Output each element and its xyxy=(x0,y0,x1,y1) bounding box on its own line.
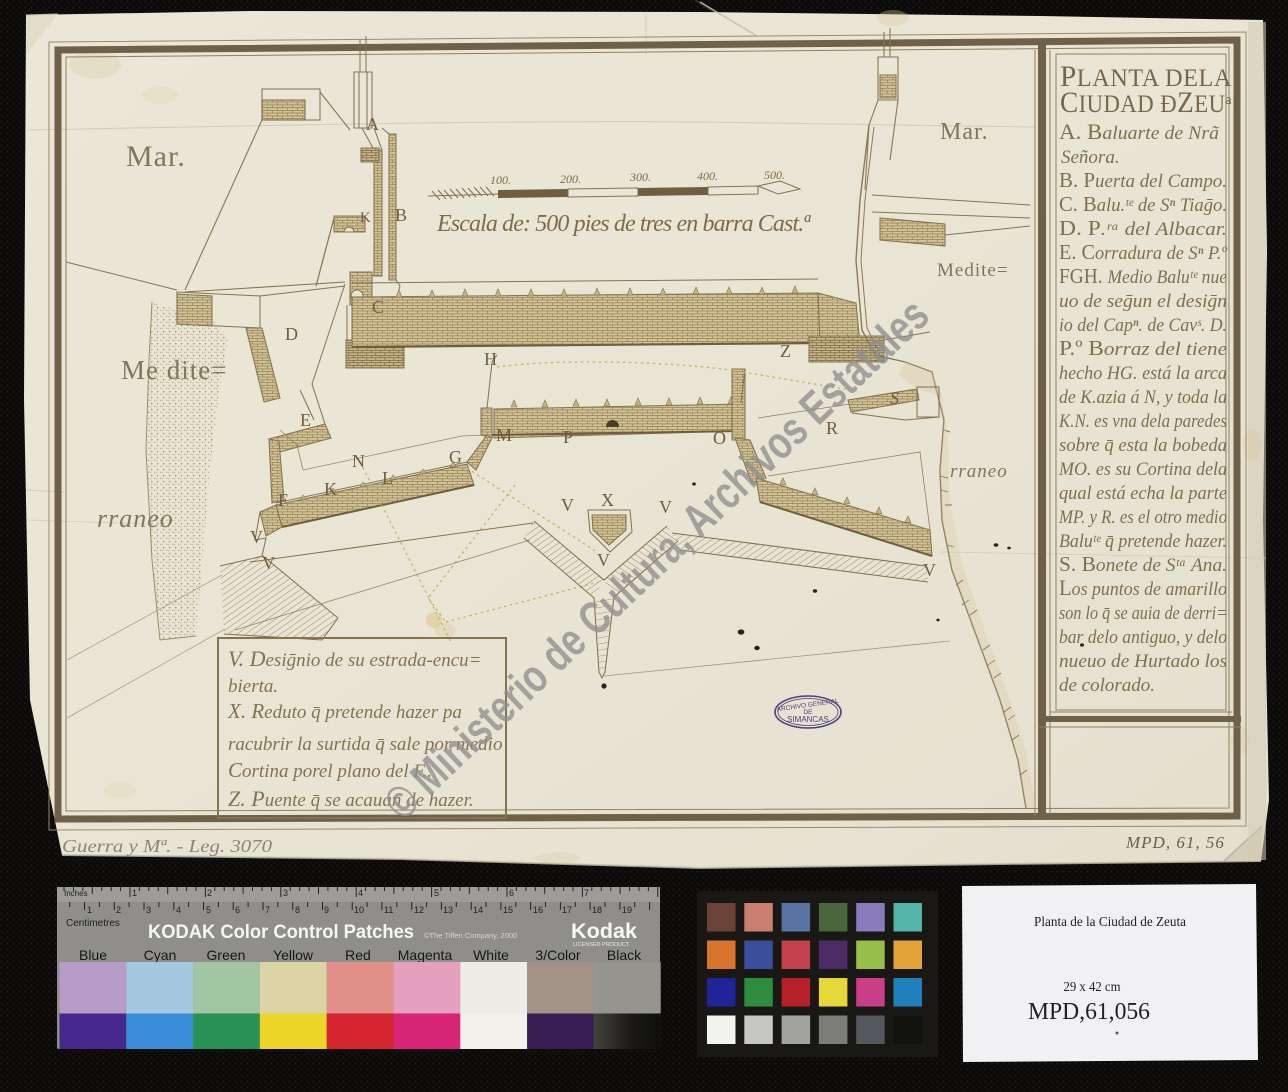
svg-text:de K.azia á N, y toda la: de K.azia á N, y toda la xyxy=(1059,387,1227,408)
svg-text:Medite=: Medite= xyxy=(937,260,1009,281)
svg-text:io del Capⁿ. de Cavˢ. D.: io del Capⁿ. de Cavˢ. D. xyxy=(1059,315,1227,336)
svg-text:Black: Black xyxy=(607,947,642,963)
svg-text:17: 17 xyxy=(562,905,572,915)
svg-text:100.: 100. xyxy=(490,173,511,187)
svg-text:©The Tiffen Company, 2000: ©The Tiffen Company, 2000 xyxy=(424,931,517,940)
svg-text:X. Reduto q̄ pretende hazer pa: X. Reduto q̄ pretende hazer pa xyxy=(227,699,462,723)
svg-text:Kodak: Kodak xyxy=(571,920,637,943)
svg-text:K: K xyxy=(360,210,371,226)
svg-text:SIMANCAS: SIMANCAS xyxy=(787,715,829,724)
svg-text:son lo q̄ se auia de derri=: son lo q̄ se auia de derri= xyxy=(1059,603,1227,624)
svg-text:Magenta: Magenta xyxy=(398,947,453,963)
svg-text:Mar.: Mar. xyxy=(126,140,186,173)
svg-text:sobre q̄ esta la bobeda: sobre q̄ esta la bobeda xyxy=(1059,435,1227,456)
svg-text:2: 2 xyxy=(116,905,121,915)
svg-text:V: V xyxy=(923,560,936,580)
svg-text:Señora.: Señora. xyxy=(1061,147,1120,168)
svg-text:K: K xyxy=(324,479,337,499)
svg-text:A. Baluarte de Nrã: A. Baluarte de Nrã xyxy=(1059,119,1220,144)
svg-text:qual está echa la parte: qual está echa la parte xyxy=(1059,483,1227,504)
svg-text:2: 2 xyxy=(207,888,212,898)
svg-text:Green: Green xyxy=(207,947,246,963)
svg-text:Cyan: Cyan xyxy=(144,947,177,963)
svg-text:S: S xyxy=(890,388,899,408)
svg-text:MO. es su Cortina dela: MO. es su Cortina dela xyxy=(1058,459,1227,480)
svg-text:3: 3 xyxy=(146,905,151,915)
svg-text:15: 15 xyxy=(503,905,513,915)
svg-text:O: O xyxy=(713,428,726,448)
svg-text:D. P.ʳᵃ del Albacar.: D. P.ʳᵃ del Albacar. xyxy=(1059,216,1227,240)
svg-text:Escala de: 500 pies de tres en: Escala de: 500 pies de tres en barra Cas… xyxy=(436,211,811,237)
svg-text:de colorado.: de colorado. xyxy=(1059,675,1155,696)
svg-text:Me dite=: Me dite= xyxy=(121,355,227,385)
svg-text:MPD,61,056: MPD,61,056 xyxy=(1028,999,1150,1025)
svg-text:300.: 300. xyxy=(629,170,651,184)
svg-text:500.: 500. xyxy=(764,168,785,182)
svg-text:9: 9 xyxy=(324,905,329,915)
svg-text:rraneo: rraneo xyxy=(97,504,174,533)
svg-text:X: X xyxy=(601,490,614,510)
svg-text:P: P xyxy=(563,427,573,447)
svg-text:CIUDAD ÐZEUa: CIUDAD ÐZEUa xyxy=(1060,86,1232,119)
svg-text:13: 13 xyxy=(443,905,453,915)
svg-text:Yellow: Yellow xyxy=(273,947,314,963)
svg-text:FGH. Medio Baluᵗᵉ nue: FGH. Medio Baluᵗᵉ nue xyxy=(1059,264,1227,288)
svg-text:4: 4 xyxy=(176,905,181,915)
svg-text:5: 5 xyxy=(434,888,439,898)
svg-text:Z: Z xyxy=(780,341,791,361)
svg-text:KODAK Color Control Patches: KODAK Color Control Patches xyxy=(148,922,414,943)
svg-text:V. Desiḡnio de su estrada-encu: V. Desiḡnio de su estrada-encu= xyxy=(228,646,481,671)
svg-text:Red: Red xyxy=(345,947,371,963)
svg-text:18: 18 xyxy=(592,905,602,915)
svg-text:5: 5 xyxy=(206,905,211,915)
svg-text:7: 7 xyxy=(265,905,270,915)
svg-text:Los puntos de amarillo: Los puntos de amarillo xyxy=(1059,575,1227,600)
svg-text:16: 16 xyxy=(533,905,543,915)
svg-text:Centimetres: Centimetres xyxy=(66,918,120,929)
svg-text:V: V xyxy=(597,550,610,570)
svg-text:nueuo de Hurtado los: nueuo de Hurtado los xyxy=(1059,651,1227,672)
svg-text:V: V xyxy=(561,495,574,515)
svg-text:L: L xyxy=(382,468,393,488)
svg-text:bar delo antiguo, y delo: bar delo antiguo, y delo xyxy=(1059,627,1227,648)
svg-text:C: C xyxy=(372,297,384,317)
svg-text:4: 4 xyxy=(358,888,363,898)
svg-text:MPD, 61, 56: MPD, 61, 56 xyxy=(1125,833,1225,852)
svg-text:G: G xyxy=(449,447,462,467)
svg-text:PLANTA DELA: PLANTA DELA xyxy=(1060,60,1232,93)
svg-text:10: 10 xyxy=(354,905,364,915)
svg-text:400.: 400. xyxy=(697,169,718,183)
svg-text:N: N xyxy=(352,451,365,471)
svg-text:MP. y R. es el otro medio: MP. y R. es el otro medio xyxy=(1058,507,1227,528)
svg-text:Mar.: Mar. xyxy=(940,119,989,145)
svg-text:12: 12 xyxy=(414,905,424,915)
svg-text:6: 6 xyxy=(509,888,514,898)
svg-text:7: 7 xyxy=(584,888,589,898)
svg-text:uo de seḡun el desiḡn: uo de seḡun el desiḡn xyxy=(1059,291,1227,312)
svg-text:11: 11 xyxy=(384,905,393,915)
svg-text:3: 3 xyxy=(283,888,288,898)
svg-text:29 x 42 cm: 29 x 42 cm xyxy=(1064,979,1121,994)
svg-text:14: 14 xyxy=(473,905,483,915)
svg-text:1: 1 xyxy=(132,888,137,898)
svg-text:200.: 200. xyxy=(560,172,581,186)
svg-text:E. Corradura de Sⁿ P.º: E. Corradura de Sⁿ P.º xyxy=(1059,240,1228,264)
svg-text:H: H xyxy=(484,349,497,369)
svg-text:3/Color: 3/Color xyxy=(535,947,580,963)
svg-text:P.º Borraz del tiene: P.º Borraz del tiene xyxy=(1059,336,1227,360)
svg-text:V: V xyxy=(262,553,275,573)
svg-text:M: M xyxy=(496,425,512,445)
svg-text:bierta.: bierta. xyxy=(228,676,278,697)
svg-text:C. Balu.ᵗᵉ de Sⁿ Tiaḡo.: C. Balu.ᵗᵉ de Sⁿ Tiaḡo. xyxy=(1059,192,1227,216)
svg-text:A: A xyxy=(366,114,379,134)
svg-text:Baluᵗᵉ q̄ pretende hazer.: Baluᵗᵉ q̄ pretende hazer. xyxy=(1059,531,1227,552)
svg-text:19: 19 xyxy=(622,905,632,915)
svg-text:Blue: Blue xyxy=(79,947,107,963)
svg-text:Planta de la Ciudad de Zeuta: Planta de la Ciudad de Zeuta xyxy=(1034,915,1187,930)
svg-text:F: F xyxy=(278,490,288,510)
svg-text:White: White xyxy=(473,947,509,963)
svg-text:V: V xyxy=(250,527,263,547)
svg-text:E: E xyxy=(300,410,311,430)
svg-text:rraneo: rraneo xyxy=(950,461,1008,482)
svg-text:S. Bonete de Sᵗᵃ Ana.: S. Bonete de Sᵗᵃ Ana. xyxy=(1059,552,1227,576)
svg-text:K.N. es vna dela paredes: K.N. es vna dela paredes xyxy=(1058,411,1227,432)
svg-text:hecho HG. está la arca: hecho HG. está la arca xyxy=(1059,363,1227,384)
svg-text:1: 1 xyxy=(87,905,92,915)
svg-text:6: 6 xyxy=(235,905,240,915)
svg-text:B. Puerta del Campo.: B. Puerta del Campo. xyxy=(1059,168,1227,192)
svg-text:B: B xyxy=(395,205,407,225)
svg-text:D: D xyxy=(285,324,298,344)
svg-text:Guerra y Mª. - Leg. 3070: Guerra y Mª. - Leg. 3070 xyxy=(62,836,272,856)
svg-text:8: 8 xyxy=(295,905,300,915)
svg-text:Inches: Inches xyxy=(64,889,88,898)
